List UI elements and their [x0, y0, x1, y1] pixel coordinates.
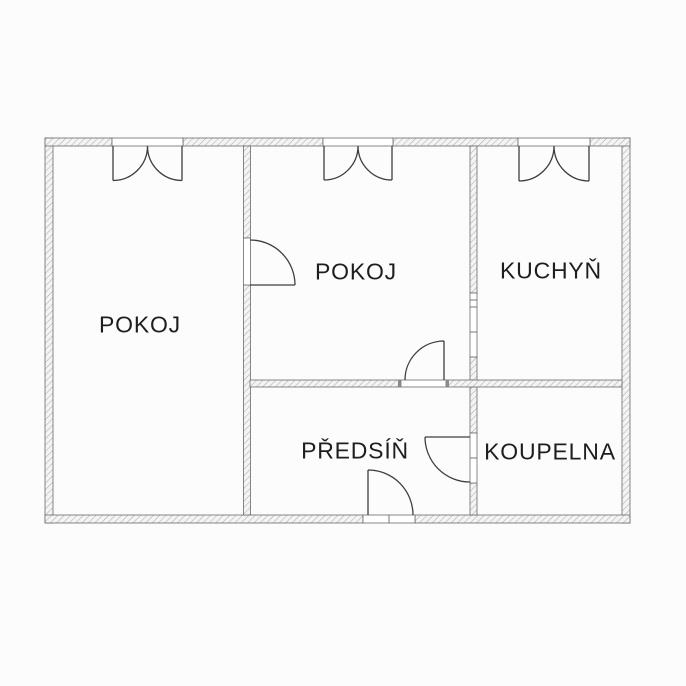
door-swing-icon	[250, 240, 295, 285]
door-swing-icon	[368, 470, 413, 515]
room-label-pokoj-left: POKOJ	[99, 312, 181, 339]
floor-plan-drawing	[0, 0, 686, 686]
room-label-pokoj-middle: POKOJ	[315, 259, 397, 286]
room-label-kuchyn: KUCHYŇ	[500, 258, 602, 285]
room-label-predsin: PŘEDSÍŇ	[301, 438, 409, 465]
room-label-koupelna: KOUPELNA	[484, 439, 616, 466]
door-swing-icon	[425, 437, 470, 482]
door-swing-icon	[405, 341, 444, 380]
casement-window-icon	[324, 146, 392, 180]
casement-window-icon	[113, 146, 182, 181]
casement-window-icon	[519, 146, 589, 181]
floor-plan-canvas: POKOJ POKOJ KUCHYŇ PŘEDSÍŇ KOUPELNA	[0, 0, 686, 686]
